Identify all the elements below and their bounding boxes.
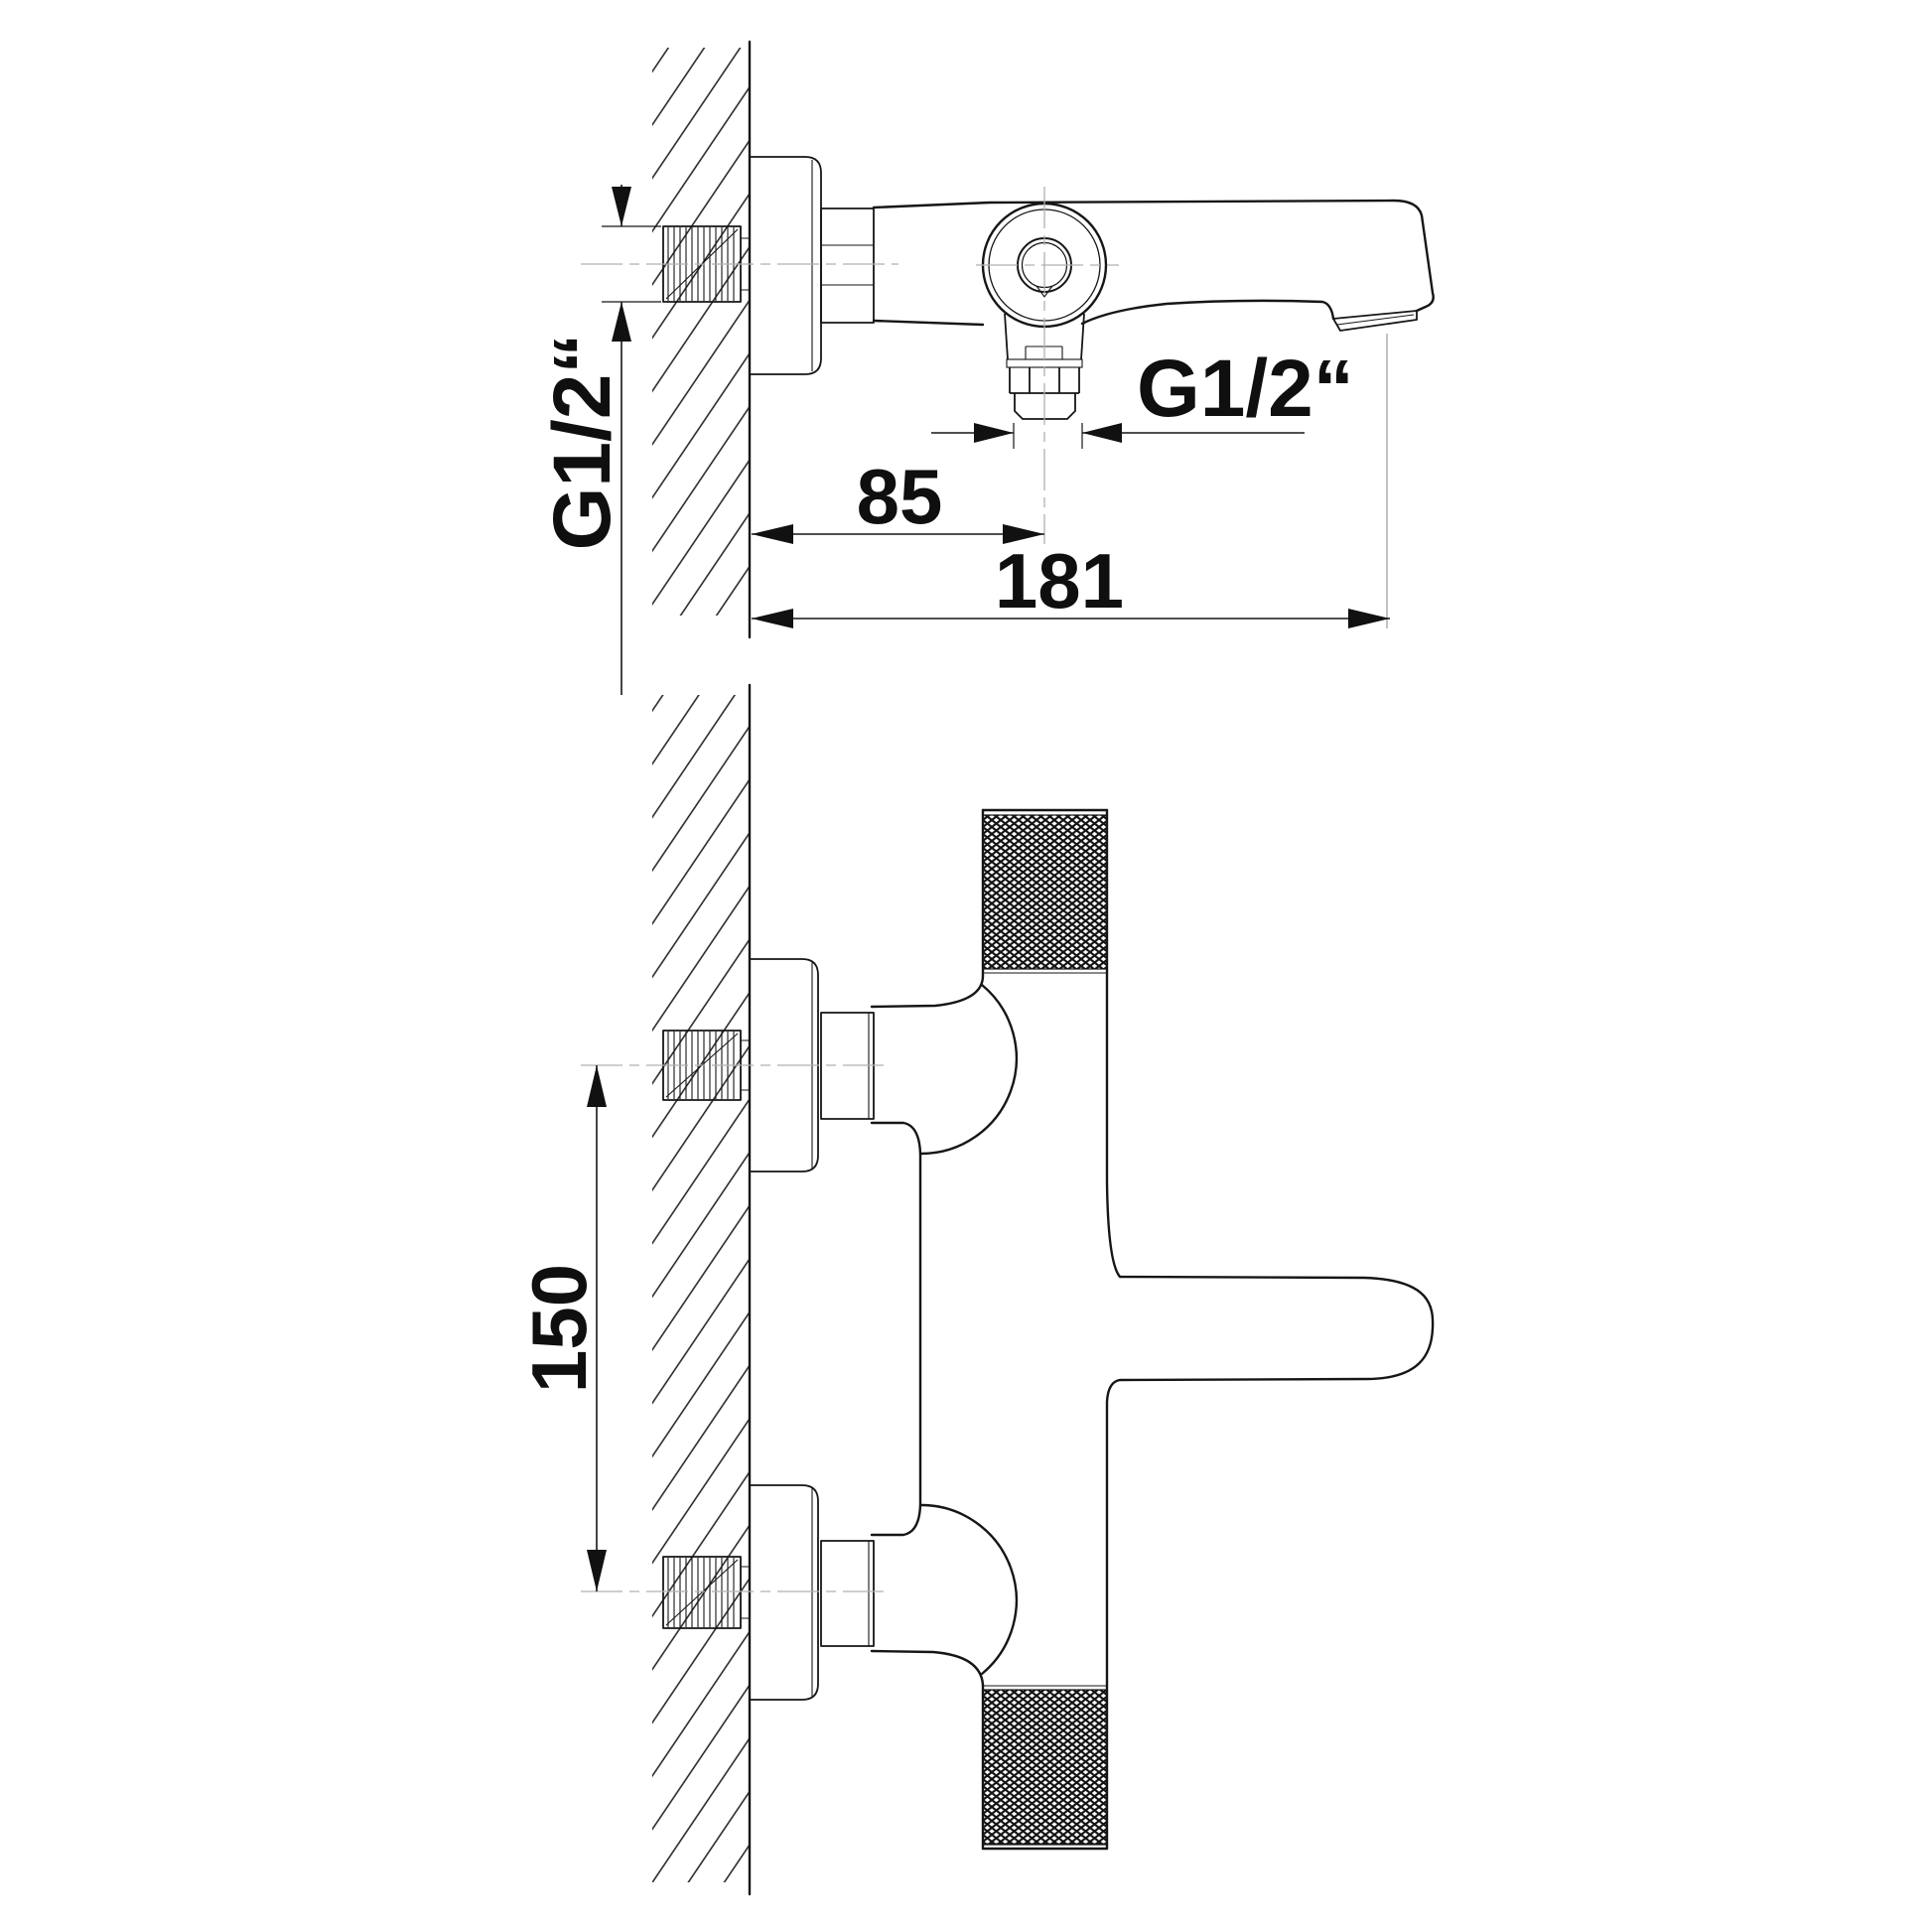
lower-valve-bulge bbox=[920, 1505, 1017, 1674]
wall-hatch-front bbox=[652, 695, 750, 1882]
dimension-85-value: 85 bbox=[857, 453, 943, 540]
dimension-outlet-thread: G1/2“ bbox=[931, 344, 1354, 449]
dimension-150: 150 bbox=[515, 1065, 607, 1591]
front-view: 150 bbox=[515, 685, 1433, 1894]
label-outlet-thread: G1/2“ bbox=[1137, 344, 1354, 434]
technical-drawing: G1/2“ G1/2“ 85 181 bbox=[0, 0, 1932, 1932]
dimension-181-value: 181 bbox=[995, 537, 1124, 624]
escutcheon-top bbox=[751, 157, 821, 374]
drawing-canvas: G1/2“ G1/2“ 85 181 bbox=[0, 0, 1932, 1932]
lower-connector bbox=[821, 1541, 874, 1646]
mixer-body bbox=[872, 810, 1433, 1849]
wall-section-front bbox=[652, 685, 750, 1894]
spout-body bbox=[874, 201, 1434, 331]
upper-valve-bulge bbox=[920, 985, 1017, 1154]
hex-nut-top bbox=[821, 208, 874, 323]
upper-knurled-knob bbox=[983, 815, 1107, 969]
dimension-inlet-thread: G1/2“ bbox=[537, 185, 661, 695]
lower-knurled-knob bbox=[983, 1690, 1107, 1845]
top-view: G1/2“ G1/2“ 85 181 bbox=[537, 42, 1434, 695]
dimension-150-value: 150 bbox=[515, 1264, 603, 1393]
aerator-tip bbox=[1333, 311, 1417, 331]
wall-hatch-top bbox=[652, 48, 750, 616]
dimension-85: 85 bbox=[752, 453, 1044, 544]
label-inlet-thread: G1/2“ bbox=[537, 334, 627, 551]
wall-section-top bbox=[652, 42, 750, 637]
lever bbox=[1107, 810, 1433, 1849]
